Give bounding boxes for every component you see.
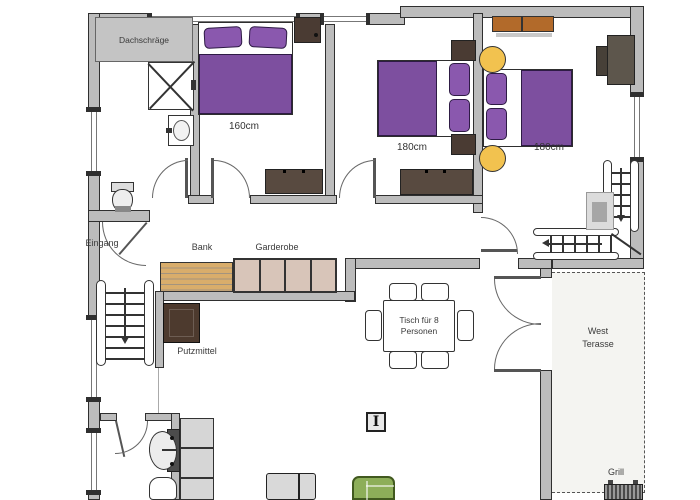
bed2-size-label: 180cm: [382, 142, 442, 153]
cleaning-closet: [163, 303, 200, 343]
sink-lower-tap: [162, 449, 177, 451]
bed1-nightstand: [294, 17, 321, 43]
stair-step: [610, 236, 612, 252]
toilet-upper-seat: [115, 206, 131, 212]
bed1-nightstand-knob: [314, 33, 318, 37]
window-left-1: [91, 112, 97, 172]
column-symbol-glyph: I: [373, 414, 380, 430]
bedroom2-dresser: [400, 169, 473, 195]
wall-bed1-bed2: [325, 24, 335, 196]
dining-chair: [389, 283, 417, 301]
wall-bath2-north-1: [100, 413, 117, 421]
armchair: [266, 473, 316, 500]
bed3-stool: [479, 46, 506, 73]
bed3-shelf: [492, 16, 554, 32]
table-label-line2: Personen: [401, 326, 437, 337]
wardrobe-panel: [260, 259, 286, 292]
sink-upper-basin: [173, 120, 190, 141]
stair-arrow-head: [121, 337, 129, 344]
window-cap: [86, 490, 101, 495]
window-top-2: [322, 16, 368, 22]
wall-left-3: [88, 398, 100, 432]
armchair-divider: [298, 474, 300, 499]
bed2-pillow: [449, 99, 470, 132]
bed3-stool: [479, 145, 506, 172]
window-cap: [366, 13, 370, 25]
stair-step: [106, 358, 144, 360]
dining-chair: [421, 351, 449, 369]
cleaning-closet-inner: [169, 309, 194, 337]
stair-arrow-head: [542, 239, 549, 247]
bed1-pillow: [203, 26, 242, 49]
sink-fitting: [170, 436, 174, 440]
bed2-pillow: [449, 63, 470, 96]
dining-chair: [457, 310, 474, 341]
wardrobe-panel: [234, 259, 260, 292]
grill: [604, 484, 643, 500]
door-arc-terrace-bottom: [494, 323, 541, 369]
stairs-entrance-rail: [144, 280, 154, 366]
wall-se-1: [540, 268, 552, 278]
sofa-seam: [366, 485, 394, 487]
stairs-main-rail: [533, 252, 619, 260]
dining-table: Tisch für 8 Personen: [383, 300, 455, 352]
passage-line: [158, 368, 159, 413]
bed3-blanket: [521, 70, 572, 146]
stair-arrow-head: [617, 215, 625, 222]
shower-valve: [191, 80, 196, 90]
floor-plan: Dachschräge 160cm 180cm 180cm Eingang Ba…: [0, 0, 700, 500]
bed1-pillow: [248, 26, 287, 49]
sink-fitting: [170, 462, 174, 466]
door-arc-bath-lower: [115, 421, 148, 454]
door-arc-bedroom1: [214, 160, 250, 198]
stairs-main-rail: [630, 160, 639, 232]
table-label-line1: Tisch für 8: [399, 315, 438, 326]
terrace-name-line2: Terasse: [552, 339, 644, 349]
wardrobe-panel: [311, 259, 337, 292]
bed3-shelf-shadow: [496, 33, 552, 37]
bed3-pillow: [486, 108, 507, 140]
dresser-knob: [425, 170, 428, 173]
bench-label: Bank: [177, 242, 227, 252]
door-arc-bedroom2: [339, 160, 375, 198]
dining-chair: [365, 310, 382, 341]
tv-cabinet: [607, 35, 635, 85]
terrace-name-line1: West: [552, 326, 644, 336]
grill-label: Grill: [591, 467, 641, 477]
sink-upper-tap: [166, 128, 172, 133]
dresser-knob: [302, 170, 305, 173]
bed2-nightstand: [451, 134, 476, 155]
bed3-shelf-divider: [521, 16, 523, 32]
bed1-size-label: 160cm: [214, 121, 274, 132]
wall-corridor-3: [375, 195, 483, 204]
stairs-entrance-rail: [96, 280, 106, 366]
window-cap: [86, 107, 101, 112]
bedroom1-dresser: [265, 169, 323, 194]
dresser-knob: [283, 170, 286, 173]
wall-se-2: [540, 370, 552, 500]
bed2-nightstand: [451, 40, 476, 61]
window-cap: [86, 428, 101, 433]
door-leaf-terrace-bottom: [494, 369, 541, 372]
bed3-size-label: 180cm: [519, 142, 579, 153]
kitchen-cabinet: [180, 478, 214, 500]
bench: [160, 262, 233, 292]
toilet-lower: [149, 477, 177, 500]
dining-chair: [421, 283, 449, 301]
door-arc-terrace-top: [494, 279, 541, 325]
window-cap: [630, 92, 644, 97]
window-right: [634, 97, 640, 158]
kitchen-cabinet: [180, 418, 214, 448]
terrace: West Terasse: [552, 272, 645, 493]
wall-corridor-2: [250, 195, 337, 204]
wardrobe: [233, 258, 337, 293]
dresser-knob: [443, 170, 446, 173]
stair-step: [106, 347, 144, 349]
dining-chair: [389, 351, 417, 369]
stair-landing-inner: [592, 202, 607, 222]
sofa: [352, 476, 395, 500]
kitchen-cabinet: [180, 448, 214, 478]
stair-arrow-shaft: [620, 168, 622, 216]
door-arc-bath-upper: [152, 160, 188, 198]
wardrobe-label: Garderobe: [247, 242, 307, 252]
attic-area: Dachschräge: [95, 17, 193, 62]
window-left-3: [91, 432, 97, 492]
window-cap: [86, 171, 101, 176]
stair-arrow-shaft: [124, 288, 126, 338]
wardrobe-panel: [285, 259, 311, 292]
wall-dining-north-1: [345, 258, 480, 269]
entrance-label: Eingang: [76, 238, 128, 248]
bed1-blanket: [199, 54, 292, 114]
bed2-blanket: [378, 61, 437, 136]
tv-cabinet-small: [596, 46, 608, 76]
door-arc-stairhall: [481, 217, 518, 254]
cleaning-label: Putzmittel: [166, 346, 228, 356]
stair-arrow-shaft: [548, 243, 602, 245]
window-cap: [86, 397, 101, 402]
column-symbol: I: [366, 412, 386, 432]
sofa-seam: [366, 481, 368, 500]
attic-label: Dachschräge: [119, 35, 169, 45]
bed3-pillow: [486, 73, 507, 105]
